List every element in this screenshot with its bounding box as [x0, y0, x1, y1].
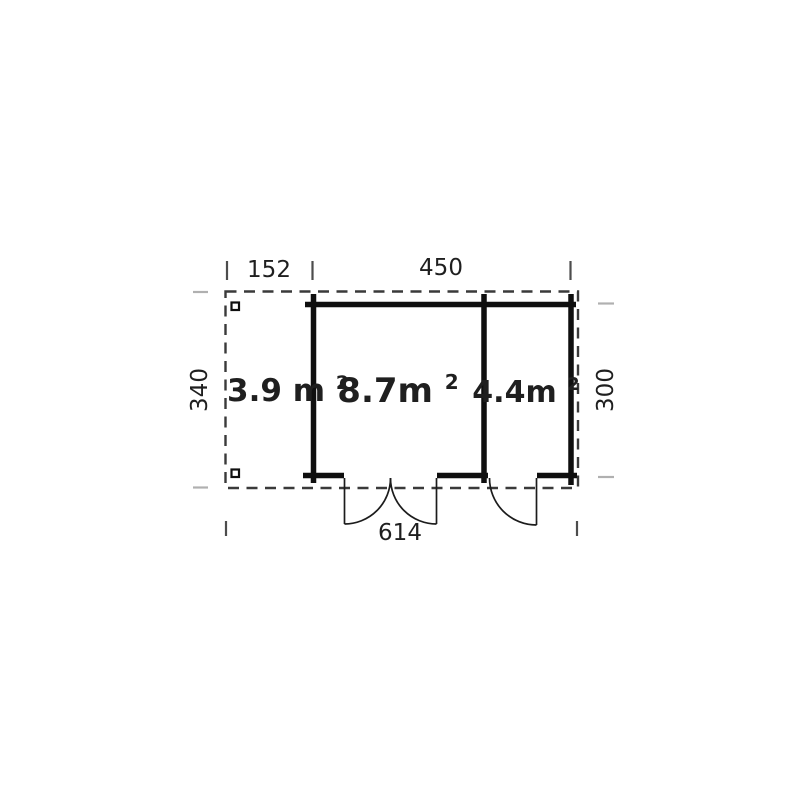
- dim-porch-width-label: 152: [247, 257, 291, 283]
- double-door-swing-left: [345, 478, 391, 524]
- doors: [345, 478, 537, 525]
- area-labels: 3.9 m 2 8.7m 2 4.4m 2: [227, 370, 580, 411]
- area-porch-label: 3.9 m 2: [227, 372, 349, 409]
- area-side-sup: 2: [567, 374, 580, 395]
- dim-overall-width-label: 614: [378, 520, 422, 546]
- dim-overall-depth-label: 340: [187, 368, 213, 412]
- dim-cabin-width-label: 450: [419, 255, 463, 281]
- area-main-sup: 2: [445, 370, 459, 394]
- area-side-value: 4.4m: [472, 375, 556, 410]
- porch-post-top: [232, 303, 240, 311]
- floor-plan-svg: 152 450 340 300 614 3.9 m 2 8.7m 2 4.4m …: [0, 0, 800, 800]
- single-door-swing: [490, 478, 537, 525]
- area-main-room-label: 8.7m 2: [337, 370, 458, 411]
- area-main-value: 8.7m: [337, 371, 433, 411]
- area-side-room-label: 4.4m 2: [472, 374, 579, 410]
- porch-post-bottom: [232, 470, 240, 478]
- floor-plan-image: 152 450 340 300 614 3.9 m 2 8.7m 2 4.4m …: [0, 0, 800, 800]
- double-door-swing-right: [391, 478, 437, 524]
- area-porch-value: 3.9 m: [227, 373, 325, 409]
- dim-cabin-depth-label: 300: [593, 368, 619, 412]
